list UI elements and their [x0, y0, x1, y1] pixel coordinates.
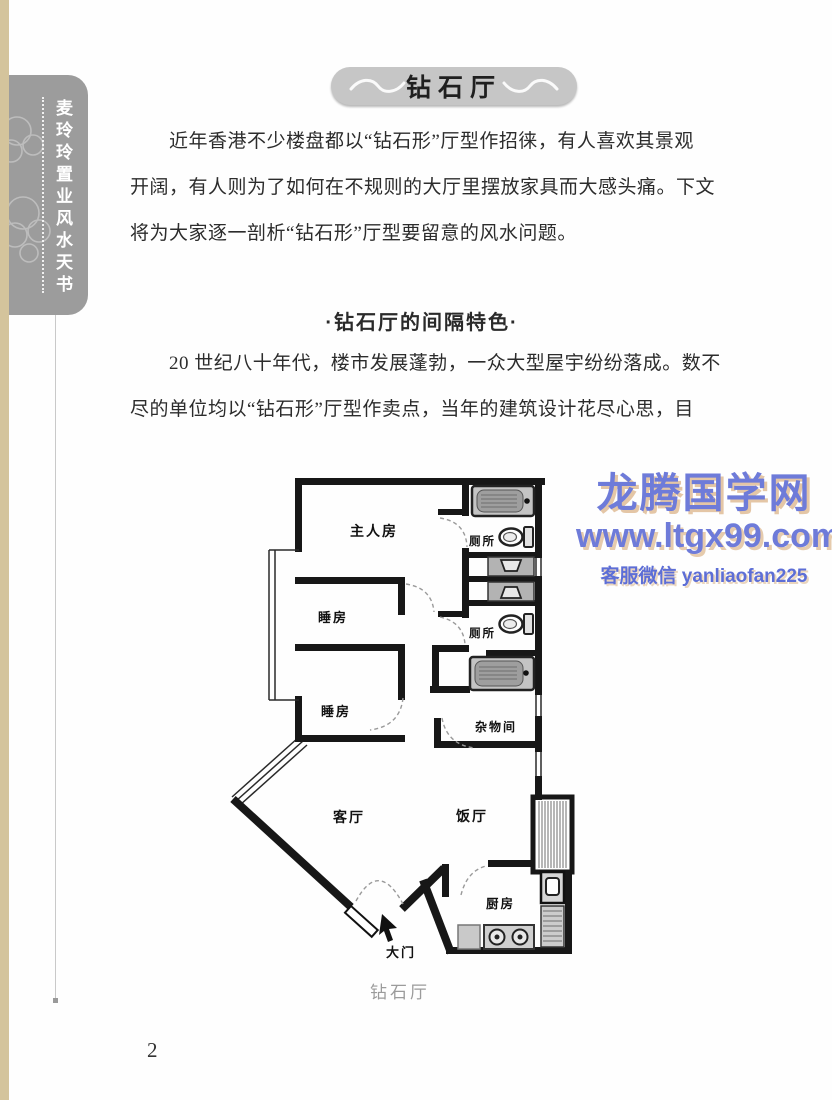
label-main-door: 大门 [386, 945, 416, 960]
washbasin-icon [488, 582, 534, 601]
label-kitchen: 厨房 [486, 896, 515, 911]
wall-bath-h2 [463, 576, 542, 582]
wall-corridor-right [432, 652, 439, 686]
wall-bedroom-divider [295, 644, 405, 651]
wall-right-1 [535, 478, 542, 558]
wall-left-upper [295, 478, 302, 552]
label-master-bedroom: 主人房 [350, 523, 398, 539]
entry-door-leaf [345, 906, 378, 937]
door-arc-master [440, 518, 467, 547]
floorplan-caption: 钻石厅 [130, 978, 670, 1003]
wall-toilet2-lobby [432, 645, 469, 652]
washbasin-icon [488, 557, 534, 576]
book-edge-strip [0, 0, 9, 1100]
label-toilet-upper: 厕所 [469, 534, 496, 548]
label-toilet-lower: 厕所 [469, 626, 496, 640]
bathtub-icon [470, 657, 534, 690]
wall-bath-left [462, 548, 469, 618]
section-heading: ·钻石厅的间隔特色· [130, 306, 714, 335]
margin-rule [55, 315, 56, 1003]
paragraph-2: 20 世纪八十年代，楼市发展蓬勃，一众大型屋宇纷纷落成。数不 尽的单位均以“钻石… [130, 349, 714, 441]
stove-icon [484, 925, 534, 949]
dining-window-icon [533, 797, 572, 872]
wall-bedroom1-right [398, 577, 405, 615]
toilet-icon [500, 527, 534, 547]
chapter-title: 钻石厅 [406, 68, 502, 104]
paragraph-2-line-2: 尽的单位均以“钻石形”厅型作卖点，当年的建筑设计花尽心思，目 [130, 395, 714, 441]
wall-bedroom2-right [398, 651, 405, 700]
swirl-left-icon [348, 76, 406, 96]
label-dining-room: 饭厅 [455, 808, 488, 824]
paragraph-1-line-3: 将为大家逐一剖析“钻石形”厅型要留意的风水问题。 [130, 219, 714, 265]
tab-dotted-line [42, 97, 44, 293]
margin-rule-tick [53, 998, 58, 1003]
wall-master-bottom [295, 577, 405, 584]
swirl-right-icon [502, 76, 560, 96]
bathtub-icon [472, 486, 534, 516]
paragraph-1-line-2: 开阔，有人则为了如何在不规则的大厅里摆放家具而大感头痛。下文 [130, 173, 714, 219]
sidebar-tab: 麦玲玲置业风水天书 [9, 75, 88, 315]
wall-bath-h4 [486, 650, 542, 656]
label-storage-room: 杂物间 [475, 719, 517, 734]
wall-kitchen-right [565, 870, 572, 954]
wall-bedroom2-bottom [295, 735, 405, 742]
counter-icon [541, 906, 564, 947]
label-bedroom-2: 睡房 [321, 704, 351, 719]
door-arc-bedroom1 [406, 584, 434, 612]
diagonal-window-icon [232, 737, 307, 805]
wall-top [295, 478, 545, 485]
page-number: 2 [147, 1038, 158, 1063]
paragraph-1: 近年香港不少楼盘都以“钻石形”厅型作招徕，有人喜欢其景观 开阔，有人则为了如何在… [130, 127, 714, 265]
label-living-room: 客厅 [332, 809, 365, 825]
book-title-vertical: 麦玲玲置业风水天书 [50, 99, 75, 297]
door-arc-entry [356, 881, 403, 904]
wall-right-4 [535, 776, 542, 800]
chapter-title-banner: 钻石厅 [331, 67, 577, 105]
toilet-icon [500, 614, 534, 634]
wall-storage-bottom [434, 741, 542, 748]
entry-arrow-icon [379, 914, 397, 942]
label-bedroom-1: 睡房 [318, 610, 348, 625]
watermark-url: www.ltgx99.com [576, 517, 832, 556]
book-page: { "sidebar": { "book_title": "麦玲玲置业风水天书"… [0, 0, 832, 1100]
sink-icon [458, 925, 480, 949]
watermark: 龙腾国学网 www.ltgx99.com 客服微信 yanliaofan225 [576, 470, 832, 588]
bay-window-icon [269, 550, 299, 700]
door-arc-kitchen [461, 866, 486, 895]
door-arc-bedroom2 [370, 698, 403, 730]
paragraph-2-line-1: 20 世纪八十年代，楼市发展蓬勃，一众大型屋宇纷纷落成。数不 [130, 349, 714, 395]
wall-storage-top [430, 686, 470, 693]
watermark-contact: 客服微信 yanliaofan225 [576, 566, 832, 588]
wall-kitchen-stub [442, 864, 449, 897]
floorplan-diagram: 主人房 厕所 厕所 睡房 睡房 杂物间 客厅 饭厅 厨房 大门 [220, 460, 585, 980]
paragraph-1-line-1: 近年香港不少楼盘都以“钻石形”厅型作招徕，有人喜欢其景观 [130, 127, 714, 173]
wall-right-2 [535, 578, 542, 695]
fridge-icon [541, 872, 564, 903]
wall-lobby-stub-2 [438, 611, 469, 617]
wall-lobby-stub-1 [438, 509, 469, 515]
watermark-site-name: 龙腾国学网 [576, 470, 832, 517]
door-arc-toilet2 [440, 617, 465, 644]
